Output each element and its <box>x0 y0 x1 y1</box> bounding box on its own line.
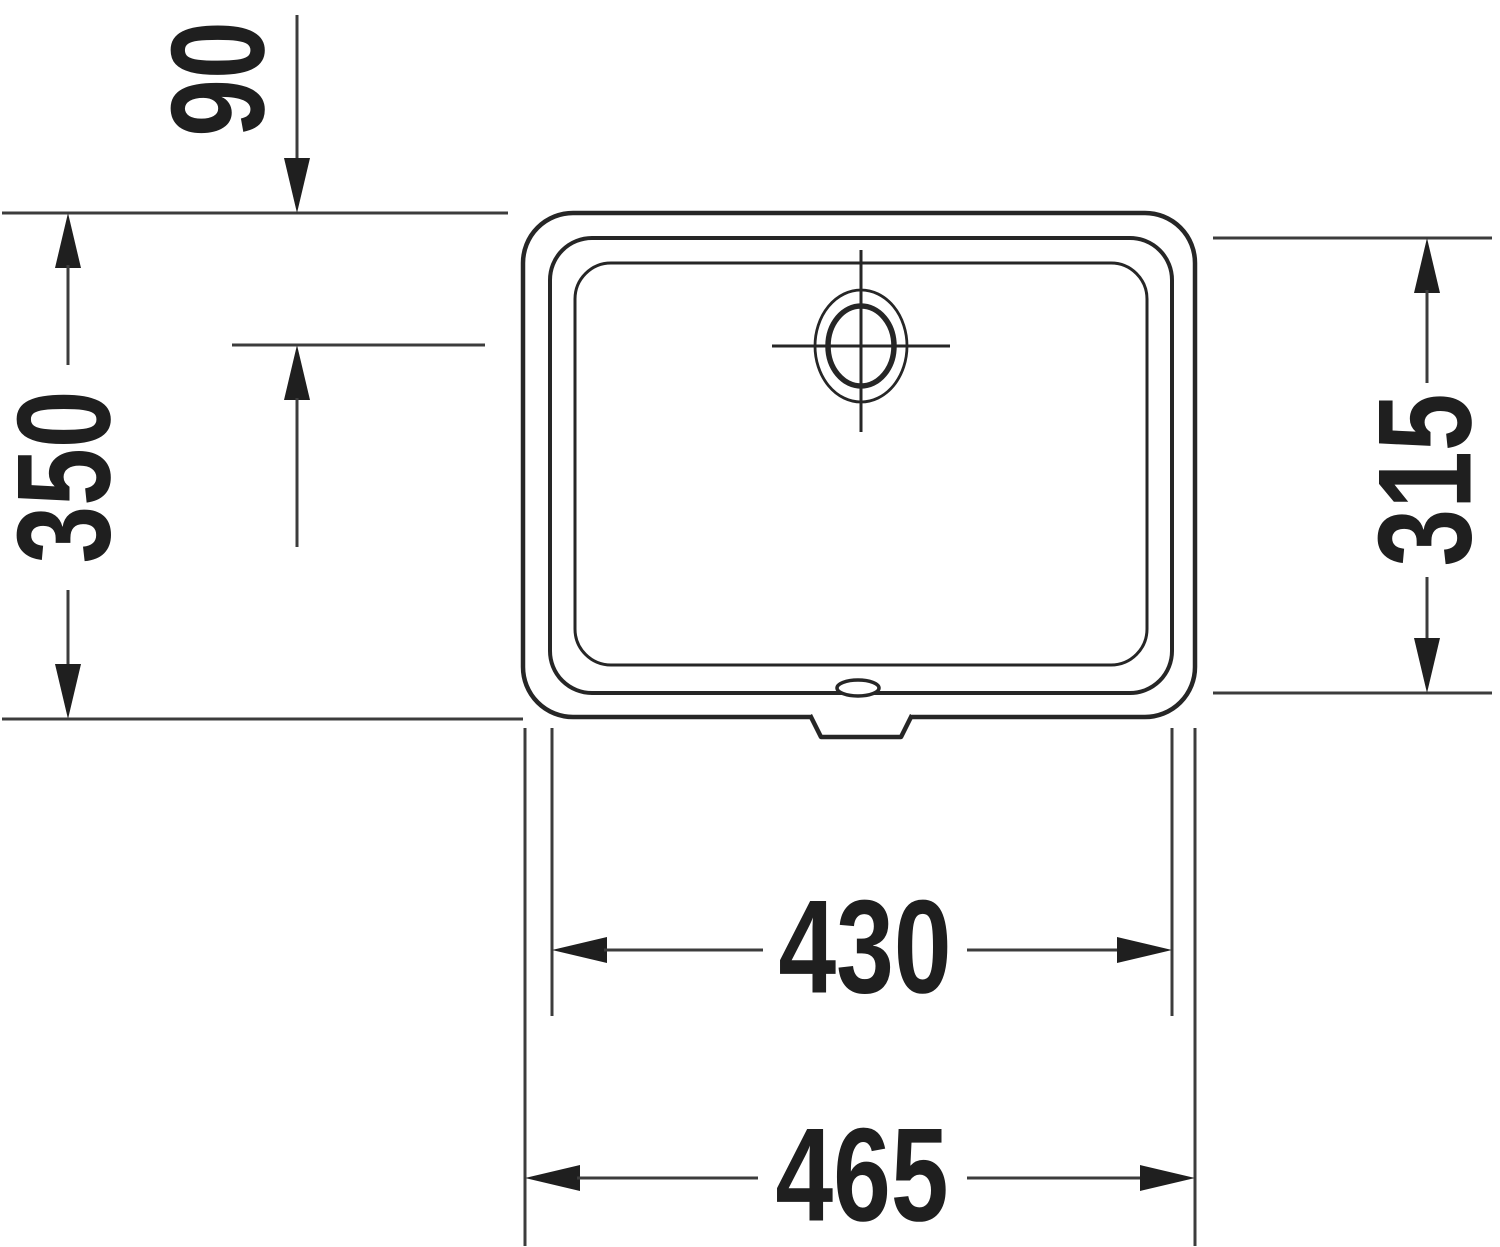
outer-rim-outline <box>523 213 1195 717</box>
dim-315-arrow-down-icon <box>1414 638 1440 693</box>
dimension-drawing-canvas: 90 350 315 430 465 <box>0 0 1500 1247</box>
dim-465-arrow-left-icon <box>525 1165 580 1191</box>
dim-315-arrow-up-icon <box>1414 238 1440 293</box>
notch-outline <box>810 715 912 737</box>
dim-value-315: 315 <box>1360 393 1493 566</box>
dim-value-350: 350 <box>0 390 132 563</box>
dim-90-arrow-up-icon <box>284 345 310 400</box>
dim-430-arrow-right-icon <box>1117 937 1172 963</box>
dim-value-465: 465 <box>775 1110 948 1243</box>
dim-430-arrow-left-icon <box>552 937 607 963</box>
overflow-mark <box>837 680 879 696</box>
washbasin-outline-group <box>523 213 1195 737</box>
dim-90-arrow-down-icon <box>284 158 310 213</box>
dim-350-arrow-up-icon <box>55 213 81 268</box>
dim-465-arrow-right-icon <box>1140 1165 1195 1191</box>
dim-value-90: 90 <box>153 21 286 136</box>
dim-value-430: 430 <box>778 882 951 1015</box>
washbasin-drawing <box>0 0 1500 1247</box>
dim-350-arrow-down-icon <box>55 664 81 719</box>
